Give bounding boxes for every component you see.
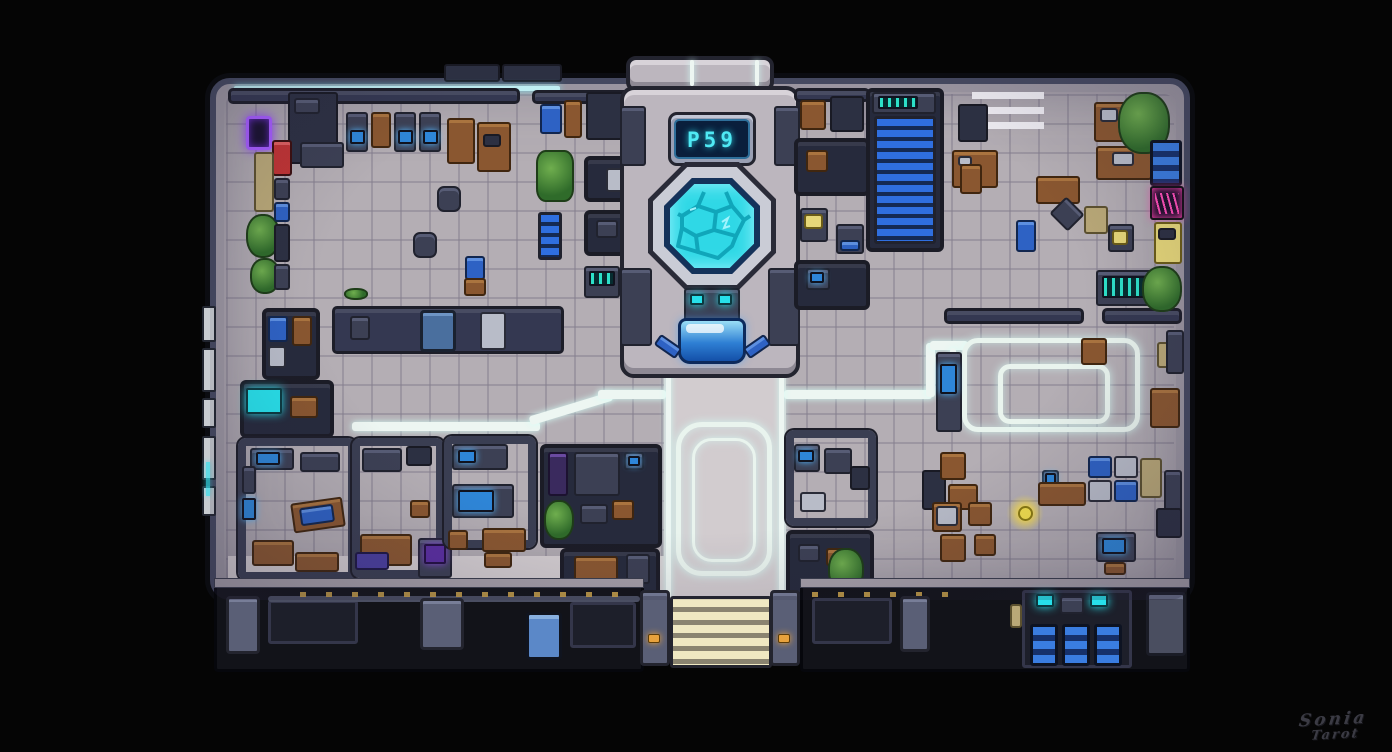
neon-poster bbox=[246, 116, 272, 150]
exterior-module bbox=[202, 348, 216, 392]
shrub bbox=[344, 288, 368, 300]
exterior-cable-glow bbox=[206, 462, 210, 496]
facade-door-blue[interactable] bbox=[526, 612, 562, 660]
pool-cell-pattern bbox=[670, 184, 754, 268]
entry-glow-line bbox=[690, 60, 694, 86]
cargo-crate-blue bbox=[1114, 480, 1138, 502]
room-wall bbox=[228, 88, 520, 104]
cooler-unit bbox=[540, 104, 562, 134]
room-wall bbox=[944, 308, 1084, 324]
kiosk-screen bbox=[1112, 230, 1128, 245]
walkway-octagon-inline bbox=[692, 438, 756, 562]
facade-machine bbox=[1146, 592, 1186, 656]
fridge[interactable] bbox=[268, 316, 288, 342]
glow-path-segment bbox=[926, 343, 935, 397]
glow-path-segment bbox=[598, 390, 666, 399]
open-book bbox=[1112, 152, 1134, 166]
wood-box bbox=[612, 500, 634, 520]
console-screen bbox=[718, 294, 732, 305]
plant bbox=[544, 500, 574, 540]
facade-pillar bbox=[420, 598, 464, 650]
planter-box bbox=[536, 150, 574, 202]
facade-coping bbox=[800, 578, 1190, 588]
monitor-screen bbox=[398, 130, 413, 144]
tree bbox=[1142, 266, 1182, 312]
wooden-desk bbox=[252, 540, 294, 566]
wooden-stool bbox=[974, 534, 996, 556]
office-chair bbox=[437, 186, 461, 212]
monitor-screen bbox=[628, 456, 640, 466]
bench bbox=[300, 142, 344, 168]
cargo-crate-blue bbox=[1088, 456, 1112, 478]
holo-sign bbox=[246, 388, 282, 414]
machine-panel bbox=[840, 240, 860, 251]
blue-container-shelf bbox=[1150, 140, 1182, 186]
wood-locker bbox=[371, 112, 391, 148]
artist-signature: Sonia Tarot bbox=[1296, 710, 1390, 745]
wooden-chair bbox=[968, 502, 992, 526]
tv-screen bbox=[256, 452, 280, 465]
desk bbox=[580, 504, 608, 524]
wood-cabinet bbox=[960, 164, 982, 194]
supply-crate bbox=[465, 256, 485, 280]
wood-cabinet bbox=[295, 552, 339, 572]
amber-light bbox=[648, 634, 660, 643]
door-blue[interactable] bbox=[420, 310, 456, 352]
wood-crate bbox=[410, 500, 430, 518]
exterior-module bbox=[202, 398, 216, 428]
bench bbox=[958, 104, 988, 142]
supply-crate bbox=[1084, 206, 1108, 234]
locker-bank[interactable] bbox=[574, 452, 620, 496]
office-chair bbox=[413, 232, 437, 258]
blue-locker[interactable] bbox=[1016, 220, 1036, 252]
console-screen bbox=[878, 96, 918, 109]
storage-unit bbox=[274, 178, 290, 200]
console-screen bbox=[1102, 538, 1126, 554]
wood-box bbox=[1104, 562, 1126, 575]
wood-shelf bbox=[564, 100, 582, 138]
wooden-desk bbox=[290, 396, 318, 418]
walkway-edge-line bbox=[779, 344, 784, 598]
crate-light bbox=[800, 492, 826, 512]
facade-panel bbox=[812, 598, 892, 644]
laptop[interactable] bbox=[1100, 108, 1118, 122]
floor-lamp[interactable] bbox=[1018, 506, 1033, 521]
table-top bbox=[936, 506, 958, 526]
amber-light bbox=[778, 634, 790, 643]
facade-pillar bbox=[226, 596, 260, 654]
storage-unit-blue bbox=[274, 202, 290, 222]
machine bbox=[1156, 508, 1182, 538]
mini-screen bbox=[242, 498, 256, 520]
bay-screen bbox=[1036, 594, 1054, 607]
energy-pool bbox=[670, 184, 754, 268]
crate bbox=[798, 544, 820, 562]
wooden-desk bbox=[447, 118, 475, 164]
neon-graffiti-sign bbox=[1150, 186, 1184, 220]
cargo-shutter[interactable] bbox=[1094, 624, 1122, 666]
counter bbox=[268, 346, 286, 368]
sink-unit bbox=[350, 316, 370, 340]
pod-pillow bbox=[294, 98, 320, 114]
arcade-screen bbox=[424, 544, 446, 564]
wooden-stool bbox=[464, 278, 486, 296]
vending-machine-red[interactable] bbox=[272, 140, 292, 176]
chamber-wing bbox=[620, 106, 646, 166]
wooden-desk bbox=[1038, 482, 1086, 506]
glow-path-loop-inner bbox=[998, 364, 1110, 424]
couch bbox=[300, 452, 340, 472]
wood-box bbox=[806, 150, 828, 172]
kitchenette-counter bbox=[254, 152, 274, 212]
facade-lights-row bbox=[300, 592, 630, 597]
wood-cabinet bbox=[292, 316, 312, 346]
cabinet bbox=[830, 96, 864, 132]
glow-path-segment bbox=[784, 390, 932, 399]
machine bbox=[824, 448, 852, 474]
vending-screen bbox=[940, 364, 957, 394]
machine bbox=[850, 466, 870, 490]
stair-rail bbox=[770, 590, 800, 666]
cargo-shutter[interactable] bbox=[1062, 624, 1090, 666]
wooden-chair bbox=[448, 530, 468, 550]
workbench bbox=[482, 528, 526, 552]
facade-pillar bbox=[900, 596, 930, 652]
facade-panel bbox=[268, 600, 358, 644]
console-screen bbox=[690, 294, 704, 305]
desk-terminal bbox=[483, 134, 501, 147]
monitor-screen bbox=[423, 130, 438, 144]
walkway-edge-line bbox=[666, 344, 671, 598]
wooden-chair bbox=[940, 534, 966, 562]
desk-monitors[interactable] bbox=[362, 448, 402, 472]
stair-rail bbox=[640, 590, 670, 666]
storage-unit bbox=[274, 264, 290, 290]
cargo-shutter[interactable] bbox=[1030, 624, 1058, 666]
violet-crate bbox=[355, 552, 389, 570]
desk-monitor[interactable] bbox=[596, 220, 618, 238]
cargo-crate-white bbox=[1088, 480, 1112, 502]
appliance-screen bbox=[458, 450, 476, 463]
facade-pad bbox=[1010, 604, 1022, 628]
cargo-crate-tan bbox=[1140, 458, 1162, 498]
purple-cabinet bbox=[548, 452, 568, 496]
door-frame[interactable] bbox=[1166, 330, 1184, 374]
vending-screen bbox=[1158, 228, 1176, 240]
escalator-blue[interactable] bbox=[874, 116, 936, 244]
shelf bbox=[406, 446, 432, 466]
wooden-table bbox=[1081, 338, 1107, 365]
bay-hatch bbox=[1060, 596, 1084, 614]
facade-coping bbox=[214, 578, 644, 588]
wood-crate bbox=[800, 100, 826, 130]
glass-highlight bbox=[686, 324, 724, 333]
roof-antenna-block bbox=[502, 64, 562, 82]
storage-unit bbox=[274, 224, 290, 262]
exterior-module bbox=[202, 306, 216, 342]
console-screen bbox=[589, 271, 615, 286]
wooden-bench bbox=[1036, 176, 1080, 204]
glow-path-segment bbox=[352, 422, 540, 431]
wooden-chair bbox=[940, 452, 966, 480]
game-screenshot: P59 bbox=[0, 0, 1392, 752]
cargo-crate-white bbox=[1114, 456, 1138, 478]
wood-box bbox=[484, 552, 512, 568]
entry-glow-line bbox=[755, 60, 759, 86]
monitor-screen bbox=[350, 130, 365, 144]
console-screen bbox=[458, 490, 494, 512]
facade-lights-row bbox=[812, 592, 952, 597]
roof-antenna-block bbox=[444, 64, 500, 82]
machine-screen bbox=[798, 450, 814, 462]
bay-screen bbox=[1090, 594, 1108, 607]
wooden-desk bbox=[477, 122, 511, 172]
arcade-screen bbox=[804, 214, 823, 229]
wooden-table bbox=[1150, 388, 1180, 428]
mini-unit bbox=[242, 466, 256, 494]
appliance bbox=[480, 312, 506, 350]
status-display[interactable]: P59 bbox=[674, 119, 750, 159]
facade-panel bbox=[570, 602, 636, 648]
monitor-screen bbox=[810, 272, 824, 283]
blue-shelf-rack bbox=[538, 212, 562, 260]
chamber-wing bbox=[620, 268, 652, 346]
entrance-stairs[interactable] bbox=[670, 596, 772, 668]
